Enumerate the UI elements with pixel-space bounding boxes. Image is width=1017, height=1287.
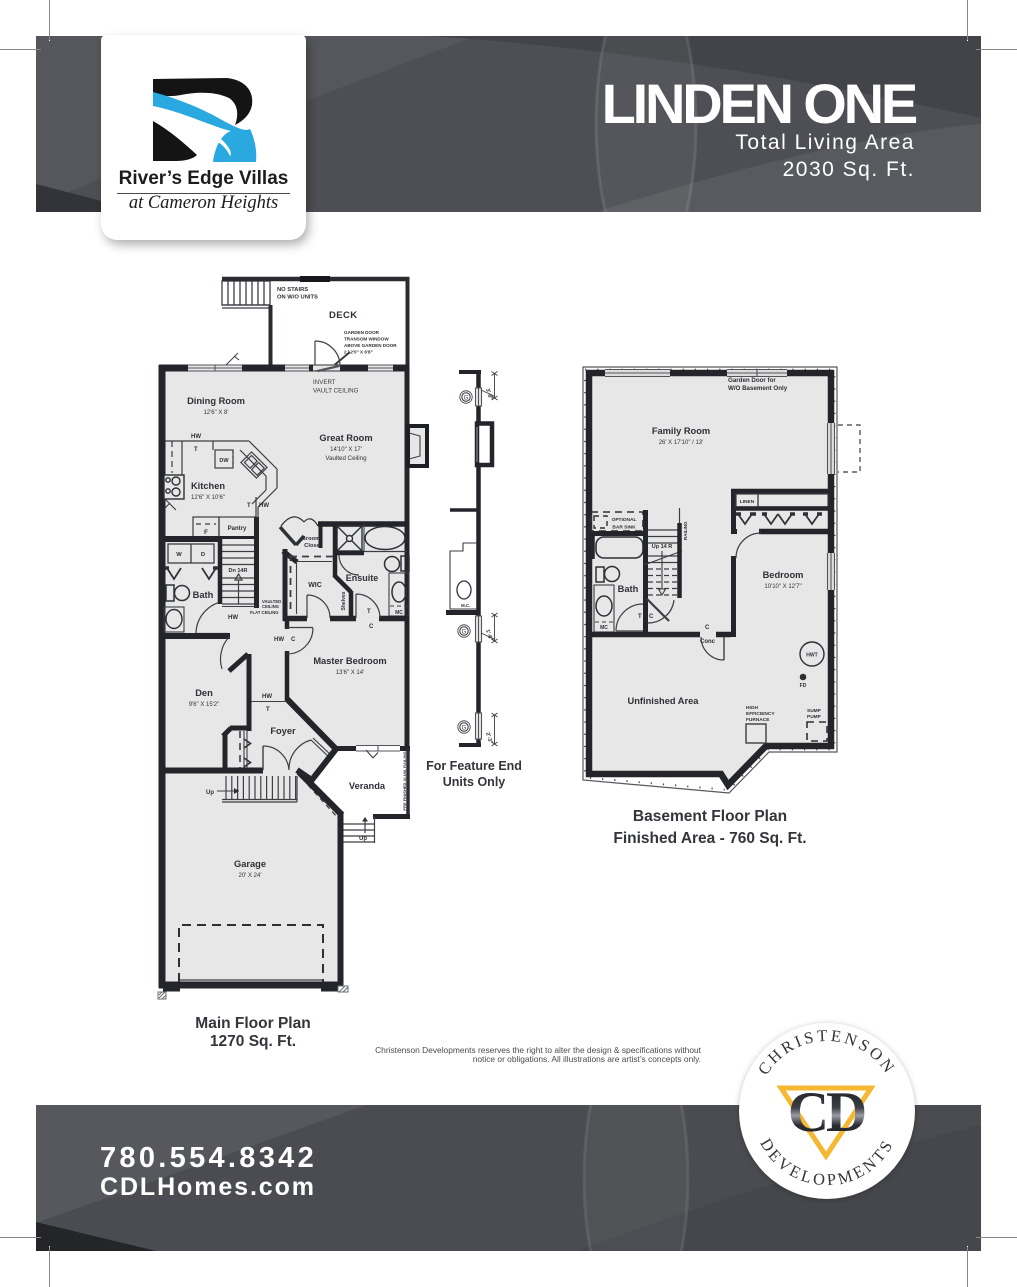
svg-text:Up: Up xyxy=(359,836,367,842)
svg-text:LINEN: LINEN xyxy=(740,499,755,505)
svg-text:GARDEN DOOR: GARDEN DOOR xyxy=(344,330,380,335)
svg-text:Basement Floor Plan: Basement Floor Plan xyxy=(633,808,787,825)
svg-text:HWT: HWT xyxy=(806,653,817,659)
svg-text:PUMP: PUMP xyxy=(807,714,822,720)
svg-text:D: D xyxy=(201,552,205,558)
svg-text:DW: DW xyxy=(219,458,229,464)
svg-text:12'6" X 8': 12'6" X 8' xyxy=(203,410,228,416)
svg-text:Finished Area - 760 Sq. Ft.: Finished Area - 760 Sq. Ft. xyxy=(613,830,806,847)
svg-text:CEILING: CEILING xyxy=(262,604,279,609)
svg-text:12'6" X 10'6": 12'6" X 10'6" xyxy=(191,495,225,501)
svg-text:W: W xyxy=(176,552,182,558)
svg-text:Den: Den xyxy=(195,688,213,698)
svg-text:Unfinished Area: Unfinished Area xyxy=(628,696,700,706)
svg-text:2'-3": 2'-3" xyxy=(484,732,493,746)
svg-text:Pantry: Pantry xyxy=(228,526,247,532)
svg-text:C: C xyxy=(705,625,710,631)
svg-text:Dn 14R: Dn 14R xyxy=(229,568,248,574)
svg-text:RAILING: RAILING xyxy=(683,521,688,540)
svg-text:Master Bedroom: Master Bedroom xyxy=(313,656,386,666)
svg-text:C: C xyxy=(649,614,654,620)
svg-text:C: C xyxy=(369,624,374,630)
svg-text:Up: Up xyxy=(206,790,214,796)
svg-text:HW: HW xyxy=(191,434,201,440)
svg-text:Garden Door for: Garden Door for xyxy=(728,377,776,384)
svg-text:Ensuite: Ensuite xyxy=(346,573,379,583)
svg-text:FLAT CEILING: FLAT CEILING xyxy=(250,610,279,615)
svg-text:SUMP: SUMP xyxy=(807,708,822,714)
svg-text:HW: HW xyxy=(228,615,238,621)
svg-text:G: G xyxy=(464,396,469,402)
svg-text:Bath: Bath xyxy=(618,584,639,594)
svg-text:Foyer: Foyer xyxy=(270,726,296,736)
svg-text:T: T xyxy=(367,609,371,615)
svg-text:For Feature End: For Feature End xyxy=(426,759,522,773)
svg-text:M.C.: M.C. xyxy=(461,603,471,608)
svg-text:14'10" X 17': 14'10" X 17' xyxy=(330,447,362,453)
svg-text:HIGH: HIGH xyxy=(746,705,759,711)
svg-text:Bedroom: Bedroom xyxy=(763,570,804,580)
svg-text:Broom: Broom xyxy=(302,536,321,542)
svg-text:HW: HW xyxy=(274,637,284,643)
svg-text:ABOVE GARDEN DOOR: ABOVE GARDEN DOOR xyxy=(344,343,397,348)
svg-text:10'10" X 12'7": 10'10" X 12'7" xyxy=(764,584,801,590)
svg-text:Main Floor Plan: Main Floor Plan xyxy=(195,1015,310,1032)
svg-text:Kitchen: Kitchen xyxy=(191,481,225,491)
svg-text:3'-8": 3'-8" xyxy=(484,388,493,402)
svg-text:Units Only: Units Only xyxy=(443,775,506,789)
svg-text:26' X 17'10" / 13': 26' X 17'10" / 13' xyxy=(659,440,704,446)
svg-text:9'6" X 15'2": 9'6" X 15'2" xyxy=(189,702,220,708)
svg-text:Shelves: Shelves xyxy=(341,591,347,610)
svg-text:DECK: DECK xyxy=(329,310,358,321)
svg-text:Veranda: Veranda xyxy=(349,781,386,791)
svg-text:MC: MC xyxy=(600,625,608,631)
svg-text:NO STAIRS: NO STAIRS xyxy=(277,287,308,293)
svg-text:MC: MC xyxy=(395,610,403,616)
svg-text:T: T xyxy=(247,503,251,509)
svg-text:W/O Basement Only: W/O Basement Only xyxy=(728,385,788,392)
svg-text:TRANSOM WINDOW: TRANSOM WINDOW xyxy=(344,337,389,342)
svg-text:T: T xyxy=(194,447,198,453)
svg-text:EFFICIENCY: EFFICIENCY xyxy=(746,711,775,717)
svg-text:OPTIONAL: OPTIONAL xyxy=(612,517,637,523)
svg-text:VAULT CEILING: VAULT CEILING xyxy=(313,388,359,395)
svg-text:Up 14 R: Up 14 R xyxy=(652,544,673,550)
svg-text:Family Room: Family Room xyxy=(652,426,710,436)
svg-text:1270 Sq. Ft.: 1270 Sq. Ft. xyxy=(210,1033,296,1050)
svg-text:CD: CD xyxy=(788,1081,865,1144)
svg-text:HW: HW xyxy=(259,503,269,509)
svg-text:13'6" X 14': 13'6" X 14' xyxy=(336,670,364,676)
svg-text:Dining Room: Dining Room xyxy=(187,396,245,406)
svg-text:C: C xyxy=(291,637,296,643)
svg-text:F: F xyxy=(204,530,208,536)
svg-text:HW: HW xyxy=(262,694,272,700)
svg-text:FD: FD xyxy=(800,683,807,689)
svg-text:WIC: WIC xyxy=(308,582,322,589)
svg-text:Vaulted Ceiling: Vaulted Ceiling xyxy=(325,455,367,462)
svg-text:FURNACE: FURNACE xyxy=(746,717,770,723)
svg-text:T: T xyxy=(266,707,270,713)
svg-text:ON W/O UNITS: ON W/O UNITS xyxy=(277,295,318,301)
svg-text:INVERT: INVERT xyxy=(313,379,336,386)
svg-text:Bath: Bath xyxy=(193,590,214,600)
svg-text:Great Room: Great Room xyxy=(319,433,372,443)
svg-text:Garage: Garage xyxy=(234,859,266,869)
svg-text:BAR SINK: BAR SINK xyxy=(612,525,636,531)
svg-text:G: G xyxy=(462,630,467,636)
svg-text:T: T xyxy=(638,614,642,620)
svg-text:G: G xyxy=(462,726,467,732)
svg-text:20' X 24': 20' X 24' xyxy=(239,873,262,879)
